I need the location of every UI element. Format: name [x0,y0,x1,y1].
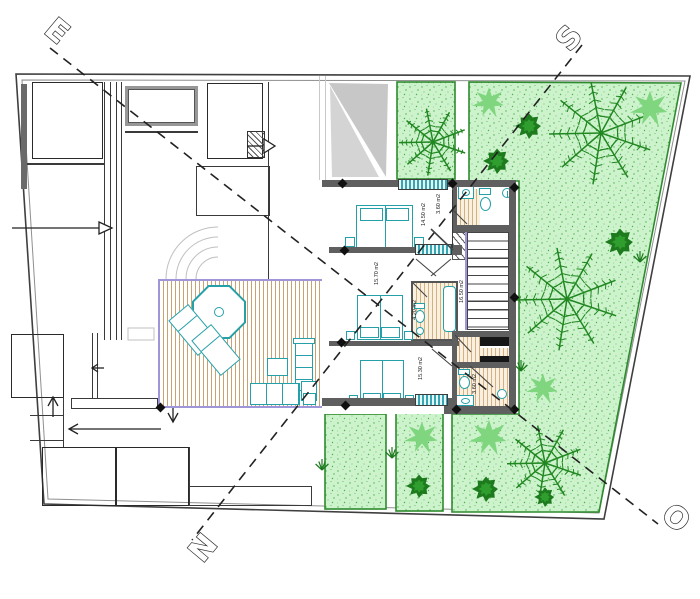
sightline-s-n [192,45,582,540]
compass-east-label: E [38,11,76,51]
door-bed2 [416,259,436,276]
door-ensuite [413,283,427,297]
compass-west-label: O [655,497,697,540]
door-utility [455,335,471,352]
wall-diagonal-bed3 [432,349,452,366]
shaft-arrow-head [264,139,275,153]
door-bath2 [470,366,493,387]
annotation-layer: E S N O [0,0,700,599]
compass-north-label: N [182,527,225,569]
wall-diagonal-hall [431,229,453,250]
door-bed2-b [431,259,451,276]
floor-plan-canvas: 14.50 m23.60 m215.70 m24.20 m216.50 m215… [0,0,700,599]
door-bath1 [453,210,467,224]
compass-south-label: S [549,19,590,58]
sightline-e-o [50,48,658,524]
entry-arrow-head [99,222,112,234]
